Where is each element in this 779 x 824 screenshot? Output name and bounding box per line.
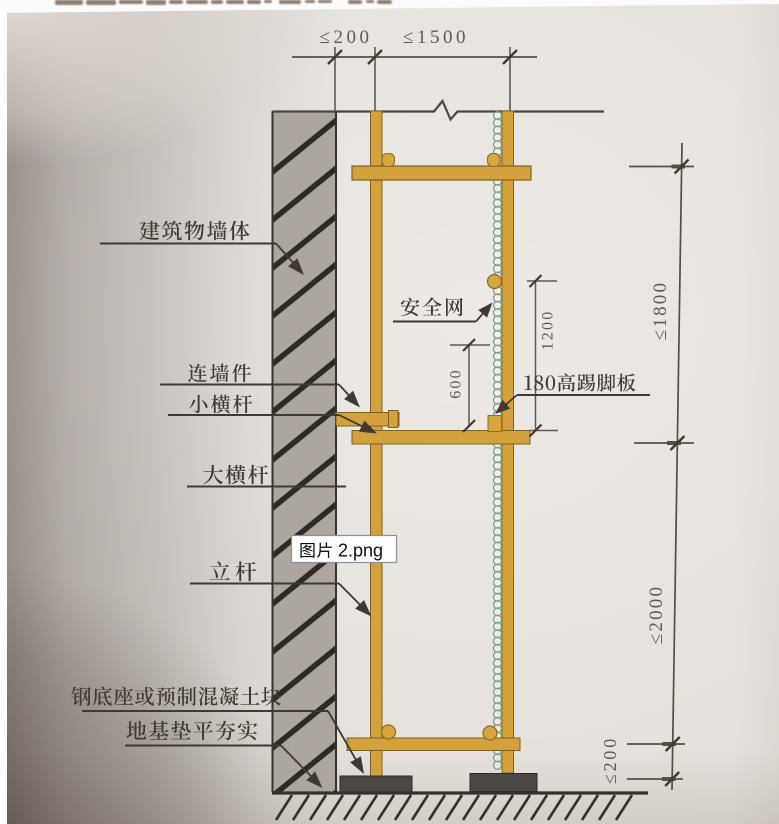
svg-text:≤1800: ≤1800	[650, 281, 671, 340]
svg-text:600: 600	[448, 368, 465, 399]
svg-text:1200: 1200	[540, 310, 557, 351]
svg-text:≤1500: ≤1500	[403, 27, 469, 48]
svg-text:≤200: ≤200	[320, 27, 373, 48]
svg-text:≤2000: ≤2000	[646, 585, 667, 644]
svg-text:≤200: ≤200	[600, 736, 620, 784]
svg-text:2.png: 2.png	[338, 541, 383, 561]
